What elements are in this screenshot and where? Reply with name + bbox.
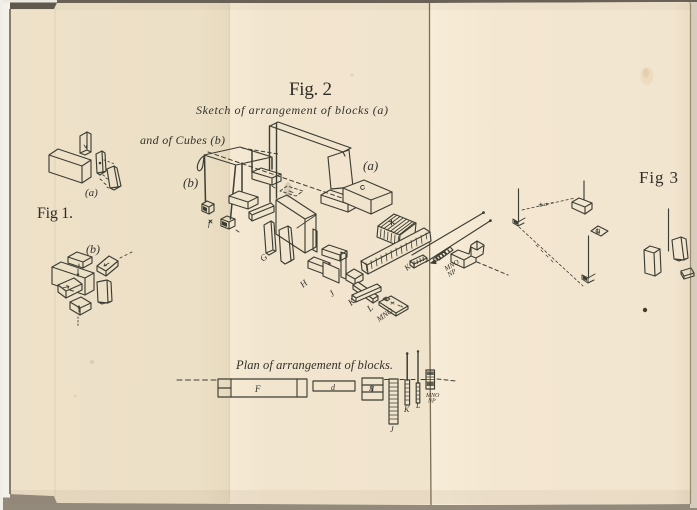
svg-text:Fig 3: Fig 3 — [639, 168, 678, 187]
svg-text:(b): (b) — [183, 175, 198, 190]
svg-text:NP: NP — [427, 399, 436, 405]
svg-text:Plan of arrangement of blo: Plan of arrangement of blocks. — [235, 358, 393, 372]
svg-text:H: H — [368, 385, 375, 393]
svg-text:L: L — [415, 401, 421, 410]
svg-text:(a): (a) — [363, 158, 378, 173]
svg-text:J: J — [390, 425, 394, 434]
svg-text:K: K — [403, 405, 410, 414]
svg-text:and of Cubes (b): and of Cubes (b) — [140, 133, 225, 147]
svg-text:Sketch of arrangement of b: Sketch of arrangement of blocks (a) — [196, 103, 388, 117]
svg-text:Fig 1.: Fig 1. — [37, 205, 73, 222]
svg-text:B: B — [596, 228, 601, 236]
svg-text:(a): (a) — [85, 187, 98, 199]
svg-text:(b): (b) — [86, 242, 100, 256]
svg-text:F: F — [254, 384, 261, 394]
svg-text:Fig. 2: Fig. 2 — [289, 79, 332, 100]
